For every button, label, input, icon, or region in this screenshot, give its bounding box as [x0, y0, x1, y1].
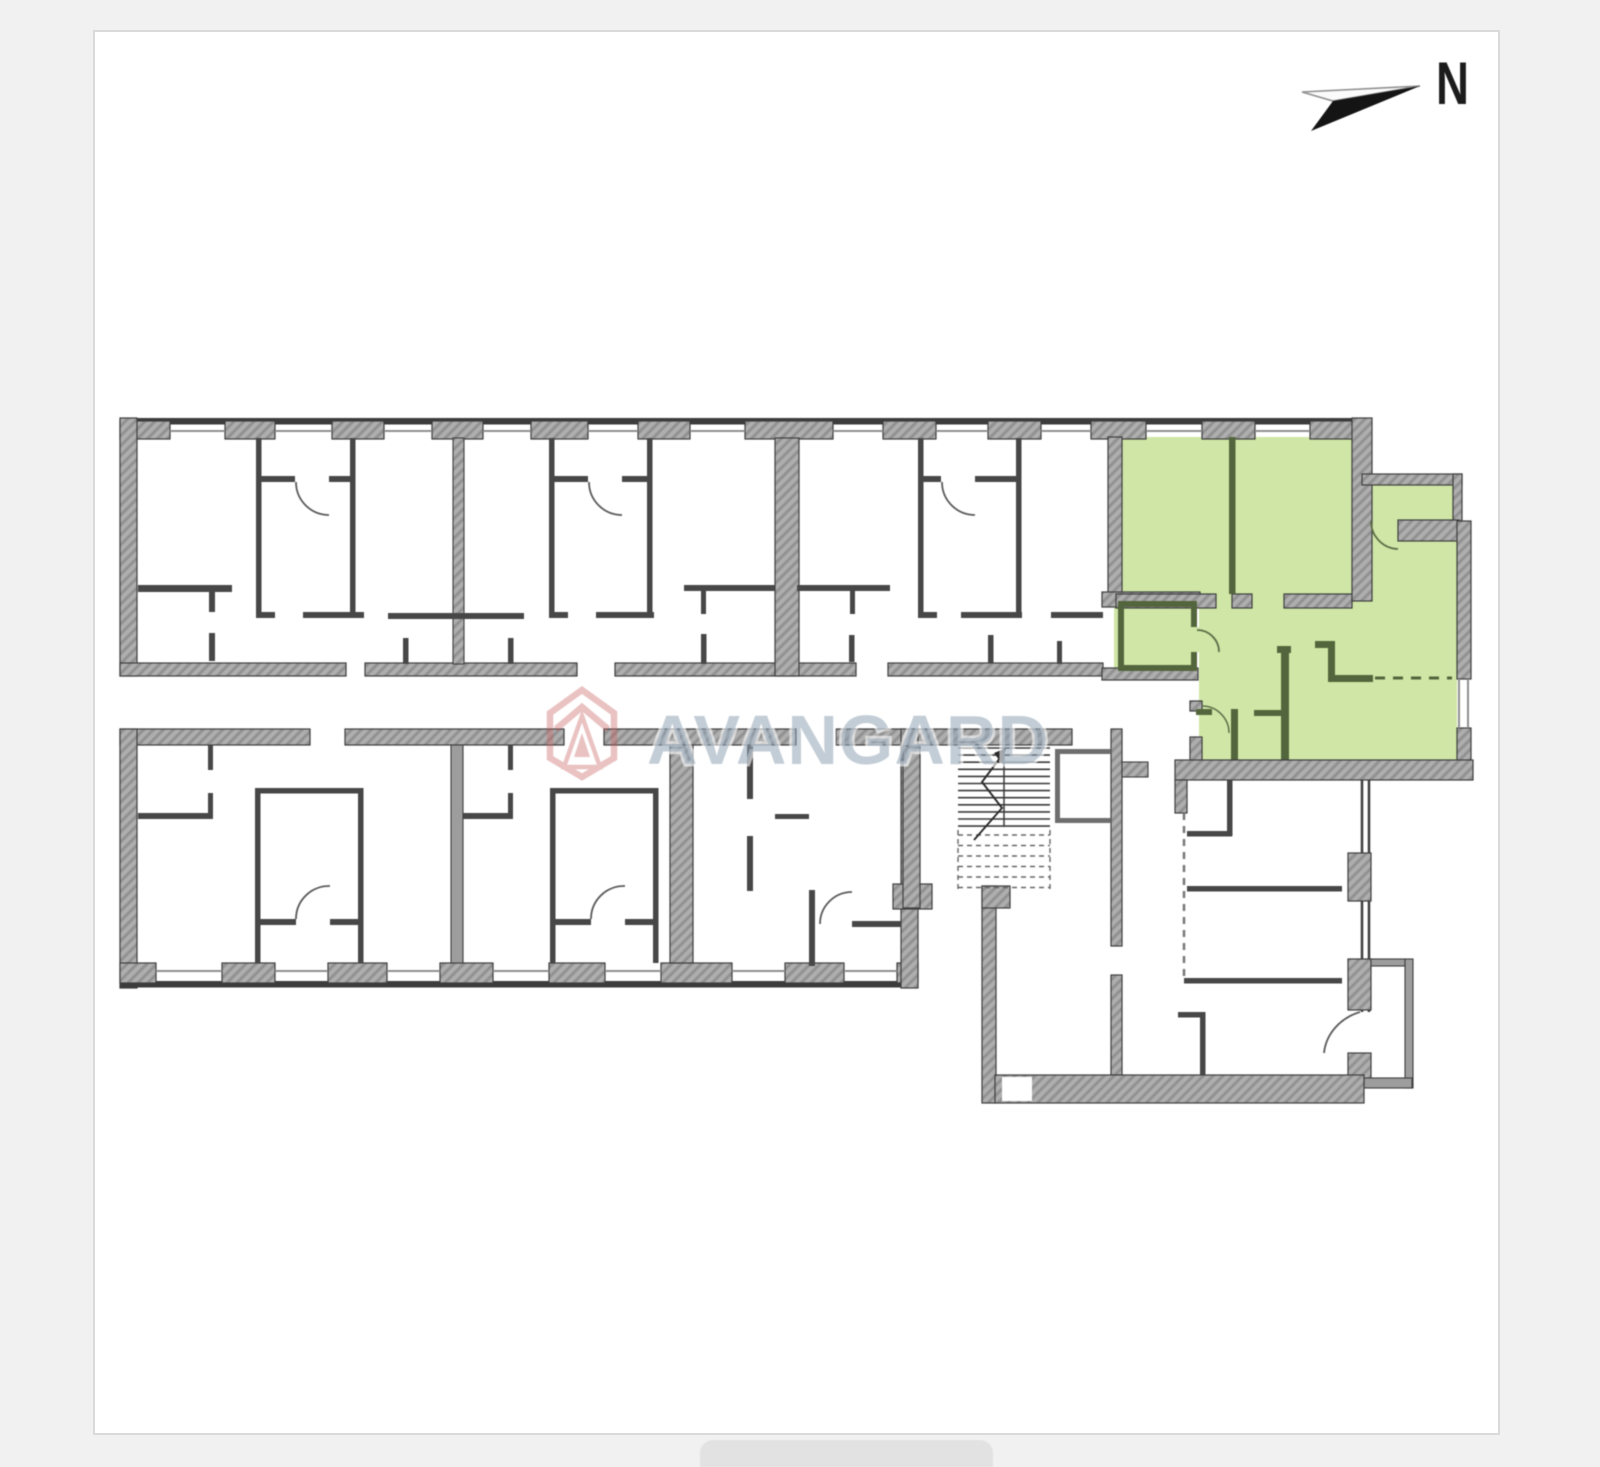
svg-text:N: N — [1436, 50, 1469, 117]
svg-text:AVANGARD: AVANGARD — [647, 701, 1049, 779]
